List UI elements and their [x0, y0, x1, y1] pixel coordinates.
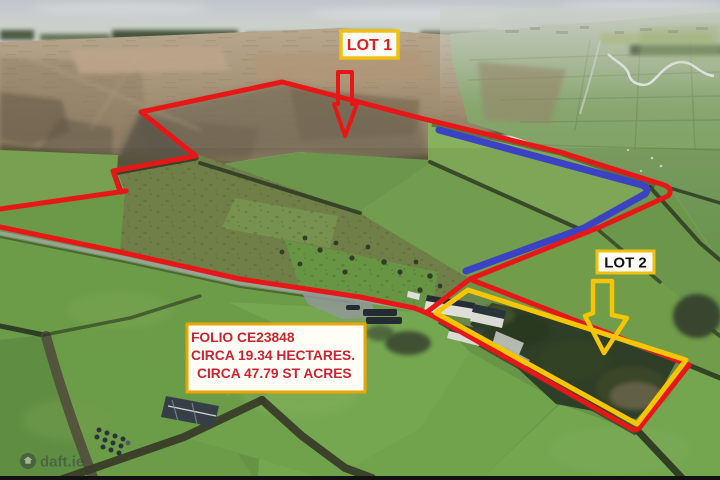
svg-text:LOT 2: LOT 2	[604, 255, 647, 272]
svg-text:LOT 1: LOT 1	[347, 37, 392, 54]
svg-text:daft.ie: daft.ie	[40, 454, 84, 471]
svg-text:CIRCA 19.34 HECTARES.: CIRCA 19.34 HECTARES.	[191, 348, 355, 363]
svg-text:CIRCA 47.79 ST ACRES: CIRCA 47.79 ST ACRES	[197, 366, 352, 381]
svg-text:FOLIO CE23848: FOLIO CE23848	[191, 330, 295, 345]
